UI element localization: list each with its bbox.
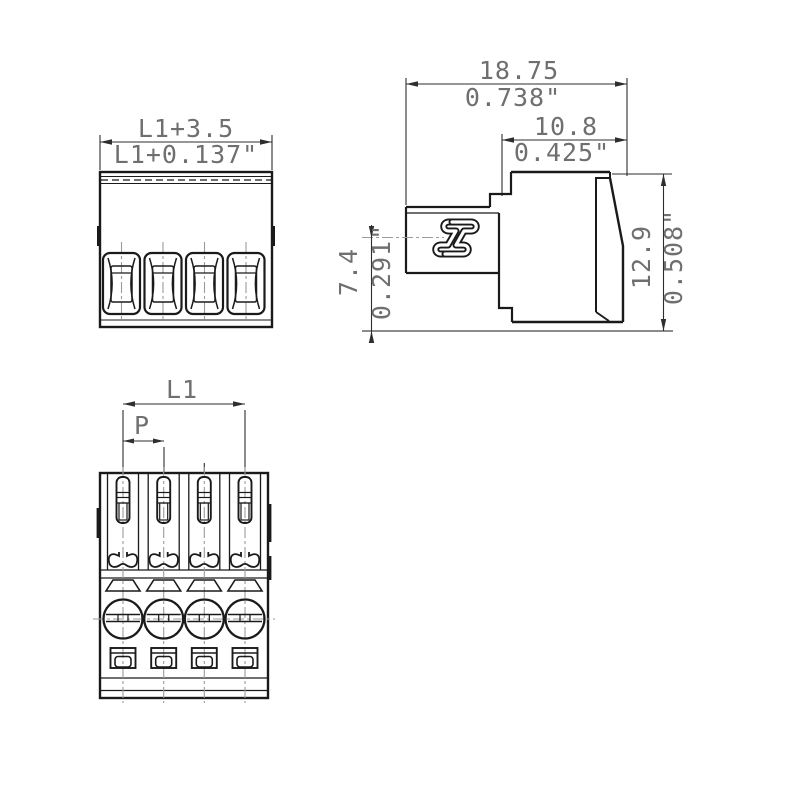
- arrowhead-right: [615, 137, 627, 142]
- housing-outline: [100, 473, 268, 698]
- plan-pole-1: [104, 467, 143, 703]
- lever-bottom-notch: [596, 312, 609, 321]
- arrowhead-left: [100, 139, 112, 144]
- plan-pitch-dimension: P: [123, 411, 164, 473]
- front-width-dimension: L1+3.5 L1+0.137": [100, 114, 272, 170]
- plan-pole-4: [226, 467, 265, 703]
- side-latch-left: [97, 226, 100, 246]
- side-wire-axis-dimension: 7.4 0.291": [334, 224, 396, 343]
- lever-inner-edge: [596, 172, 610, 312]
- arrowhead-right: [153, 439, 164, 444]
- arrowhead-top: [661, 174, 666, 186]
- drawing-canvas: L1+3.5 L1+0.137": [0, 0, 800, 800]
- dim-side-height-inch: 0.508": [659, 209, 688, 305]
- clamp-contact-icon: [436, 222, 477, 254]
- arrowhead-right: [615, 81, 627, 86]
- arrowhead-left: [123, 439, 134, 444]
- dim-side-wire-axis-mm: 7.4: [334, 248, 363, 296]
- dim-front-width-mm: L1+3.5: [138, 114, 234, 143]
- side-latch-left: [97, 508, 100, 538]
- dim-side-overall-inch: 0.738": [465, 83, 561, 112]
- plan-view: L1 P: [93, 375, 275, 703]
- lever-outer-edge: [610, 178, 623, 322]
- front-view: L1+3.5 L1+0.137": [97, 114, 275, 327]
- side-latch-right-upper: [268, 504, 271, 542]
- dim-plan-length: L1: [166, 375, 198, 404]
- arrowhead-left: [123, 401, 135, 406]
- plan-pole-2: [144, 467, 183, 703]
- side-housing-dimension: 10.8 0.425": [502, 112, 627, 196]
- arrowhead-right: [233, 401, 245, 406]
- dim-plan-pitch: P: [134, 411, 150, 440]
- dim-side-wire-axis-inch: 0.291": [367, 224, 396, 320]
- dim-side-overall-mm: 18.75: [479, 56, 559, 85]
- side-view: 18.75 0.738" 10.8 0.425": [334, 56, 688, 343]
- arrowhead-bottom: [661, 319, 666, 331]
- side-latch-right-lower: [268, 556, 271, 580]
- plan-pole-3: [185, 467, 224, 703]
- dim-side-housing-inch: 0.425": [514, 138, 610, 167]
- arrowhead-left: [406, 81, 418, 86]
- top-step: [490, 172, 511, 207]
- dim-front-width-inch: L1+0.137": [114, 140, 258, 169]
- housing-left-step: [499, 213, 512, 322]
- plan-outline: [93, 473, 275, 698]
- arrowhead-bottom: [369, 331, 374, 343]
- arrowhead-right: [260, 139, 272, 144]
- side-latch-right: [272, 226, 275, 246]
- dim-side-height-mm: 12.9: [627, 225, 656, 289]
- dim-side-housing-mm: 10.8: [534, 112, 598, 141]
- technical-drawing-page: L1+3.5 L1+0.137": [0, 0, 800, 800]
- arrowhead-left: [502, 137, 514, 142]
